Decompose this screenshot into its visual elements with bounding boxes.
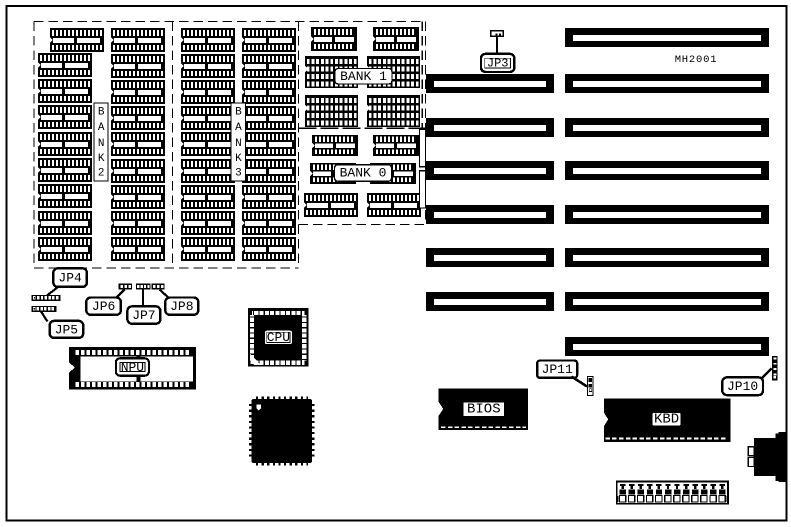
svg-text:2: 2 xyxy=(98,168,105,180)
svg-text:N: N xyxy=(98,138,105,150)
svg-text:KBD: KBD xyxy=(654,411,679,427)
svg-text:3: 3 xyxy=(235,168,242,180)
svg-text:MH2001: MH2001 xyxy=(675,54,718,66)
svg-text:N: N xyxy=(235,138,242,150)
svg-text:BANK 0: BANK 0 xyxy=(340,166,387,181)
svg-text:JP8: JP8 xyxy=(170,299,193,314)
svg-text:JP4: JP4 xyxy=(58,271,82,286)
svg-text:CPU: CPU xyxy=(267,330,290,345)
svg-text:A: A xyxy=(235,122,242,134)
svg-text:JP7: JP7 xyxy=(132,308,155,323)
svg-text:JP10: JP10 xyxy=(727,379,758,394)
svg-text:JP5: JP5 xyxy=(55,322,78,337)
svg-text:JP6: JP6 xyxy=(92,299,115,314)
svg-text:K: K xyxy=(98,153,105,165)
svg-text:NPU: NPU xyxy=(121,360,144,375)
svg-text:B: B xyxy=(235,106,242,118)
svg-text:BIOS: BIOS xyxy=(467,401,501,417)
svg-text:K: K xyxy=(235,153,242,165)
svg-text:JP3: JP3 xyxy=(487,56,509,70)
svg-text:BANK 1: BANK 1 xyxy=(340,69,387,84)
svg-text:B: B xyxy=(98,106,105,118)
svg-text:A: A xyxy=(98,122,105,134)
svg-text:JP11: JP11 xyxy=(542,362,573,377)
